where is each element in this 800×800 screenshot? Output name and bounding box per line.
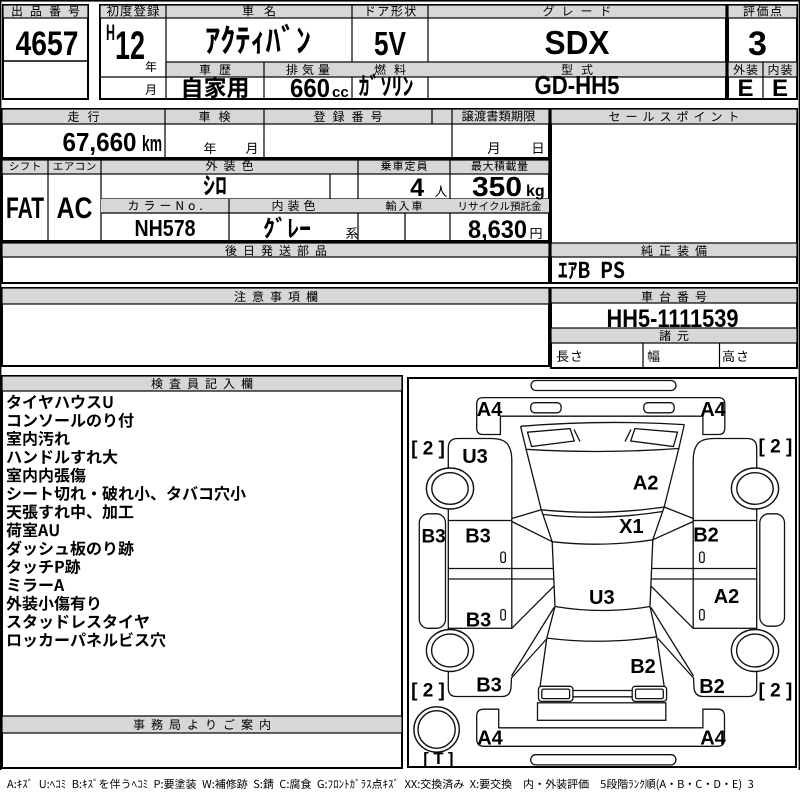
svg-text:A4: A4: [477, 399, 503, 421]
svg-text:E: E: [737, 75, 753, 102]
svg-text:[ 2 ]: [ 2 ]: [759, 681, 793, 702]
svg-text:E: E: [772, 75, 788, 102]
svg-text:H: H: [106, 20, 115, 45]
svg-text:cc: cc: [332, 84, 349, 101]
svg-text:B3: B3: [465, 526, 491, 548]
svg-text:A4: A4: [700, 728, 726, 750]
svg-text:B2: B2: [699, 676, 725, 698]
svg-text:[ 2 ]: [ 2 ]: [759, 437, 793, 458]
svg-text:X1: X1: [619, 516, 643, 538]
svg-text:AC: AC: [57, 192, 93, 225]
svg-text:A4: A4: [700, 399, 726, 421]
svg-text:[ 2 ]: [ 2 ]: [411, 439, 445, 460]
svg-text:kg: kg: [526, 183, 545, 200]
svg-text:B3: B3: [476, 675, 502, 697]
svg-text:4657: 4657: [16, 25, 79, 63]
svg-text:3: 3: [748, 25, 767, 63]
svg-text:67,660: 67,660: [63, 127, 137, 157]
svg-text:SDX: SDX: [545, 24, 610, 61]
svg-text:U3: U3: [589, 587, 615, 609]
svg-text:B3: B3: [421, 527, 445, 548]
svg-text:660: 660: [290, 73, 330, 103]
svg-text:12: 12: [115, 24, 145, 68]
svg-text:km: km: [142, 131, 162, 156]
svg-text:B2: B2: [693, 525, 719, 547]
svg-text:[ 2 ]: [ 2 ]: [411, 681, 445, 702]
svg-text:350: 350: [472, 171, 522, 202]
svg-text:B3: B3: [466, 610, 492, 632]
svg-text:[ T ]: [ T ]: [423, 750, 453, 768]
svg-text:4: 4: [410, 174, 424, 202]
svg-text:8,630: 8,630: [468, 216, 527, 244]
svg-text:NH578: NH578: [135, 215, 196, 241]
svg-text:A2: A2: [633, 473, 659, 495]
svg-text:GD-HH5: GD-HH5: [535, 70, 620, 100]
svg-text:U3: U3: [462, 446, 488, 468]
svg-text:A2: A2: [714, 586, 740, 608]
svg-text:FAT: FAT: [6, 192, 44, 225]
svg-text:5V: 5V: [374, 25, 406, 62]
svg-text:B2: B2: [630, 656, 656, 678]
svg-text:A4: A4: [477, 728, 503, 750]
svg-text:HH5-1111539: HH5-1111539: [607, 305, 739, 333]
